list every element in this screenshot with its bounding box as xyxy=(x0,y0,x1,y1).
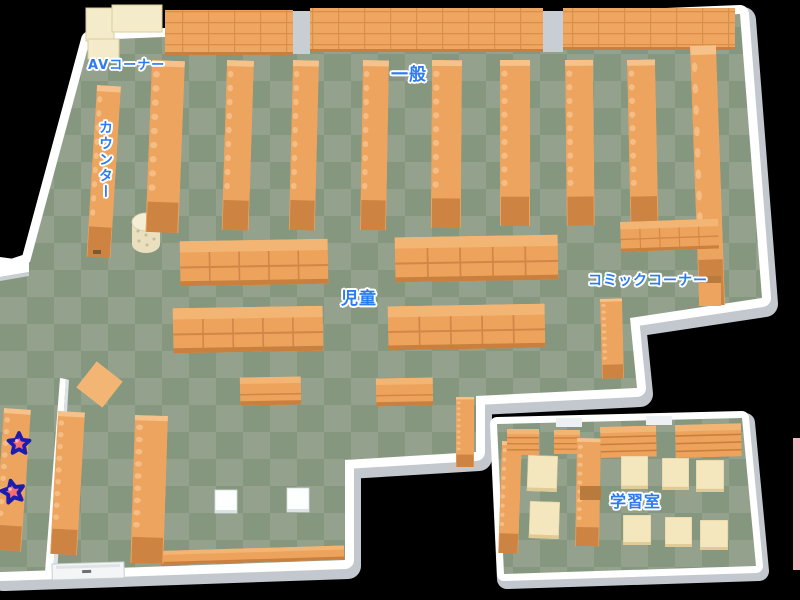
bookshelf xyxy=(554,430,580,454)
study-table xyxy=(696,460,724,492)
study-table xyxy=(662,458,689,490)
av-cabinet xyxy=(86,8,114,41)
av-cabinet xyxy=(112,5,162,32)
bookshelf xyxy=(431,60,462,228)
door-handle xyxy=(82,570,91,573)
bookshelf-grid xyxy=(563,8,735,50)
bookshelf xyxy=(627,59,658,226)
area-label-children: 児童 xyxy=(341,284,377,309)
bookshelf xyxy=(500,60,530,226)
bookshelf xyxy=(388,304,546,351)
area-label-counter: カウンター xyxy=(95,120,115,200)
doorway-gap xyxy=(646,416,672,425)
study-table xyxy=(623,515,651,545)
bookshelf xyxy=(456,397,474,467)
bookshelf-grid xyxy=(165,10,293,55)
study-table xyxy=(665,517,692,547)
bookshelf-grid xyxy=(310,8,543,52)
bookshelf xyxy=(600,426,657,458)
study-table xyxy=(527,455,558,492)
low-bookshelf xyxy=(376,377,433,406)
study-table xyxy=(621,456,648,489)
map-edge-marker xyxy=(793,438,800,570)
bookshelf xyxy=(620,219,719,252)
partition-gap xyxy=(580,486,601,500)
white-table-shade xyxy=(215,510,237,513)
bookshelf xyxy=(675,423,742,458)
bookshelf xyxy=(565,60,595,226)
study-table xyxy=(529,501,560,539)
floor-map-graphic xyxy=(0,0,800,600)
bookshelf xyxy=(145,60,185,233)
white-table-shade xyxy=(287,509,309,512)
bookshelf xyxy=(395,235,559,283)
bookshelf xyxy=(600,298,624,379)
bookshelf xyxy=(360,60,389,230)
bookshelf-edge xyxy=(310,49,543,52)
bookshelf xyxy=(222,60,254,231)
counter-base-mark xyxy=(93,250,101,254)
doorway-gap xyxy=(556,418,582,427)
bookshelf xyxy=(507,429,539,455)
wall-pillar xyxy=(543,11,563,52)
bookshelf-edge xyxy=(165,52,293,55)
area-label-av-corner: AVコーナー xyxy=(88,54,165,73)
area-label-comic-corner: コミックコーナー xyxy=(588,270,708,290)
area-label-general: 一般 xyxy=(391,60,427,85)
bookshelf xyxy=(498,441,522,554)
entrance-door xyxy=(52,562,124,580)
bookshelf xyxy=(173,306,324,354)
white-table xyxy=(287,488,309,512)
library-floor-map: AVコーナー 一般 カウンター 児童 コミックコーナー 学習室 xyxy=(0,0,800,600)
area-label-study-room: 学習室 xyxy=(610,488,661,512)
wall-pillar xyxy=(293,11,310,54)
bookshelf xyxy=(180,239,329,287)
white-table xyxy=(215,490,237,513)
bookshelf xyxy=(289,60,319,231)
top-wall-bookshelves xyxy=(165,8,735,55)
study-table xyxy=(700,520,728,550)
bookshelf xyxy=(130,415,168,564)
low-bookshelf xyxy=(240,376,301,405)
